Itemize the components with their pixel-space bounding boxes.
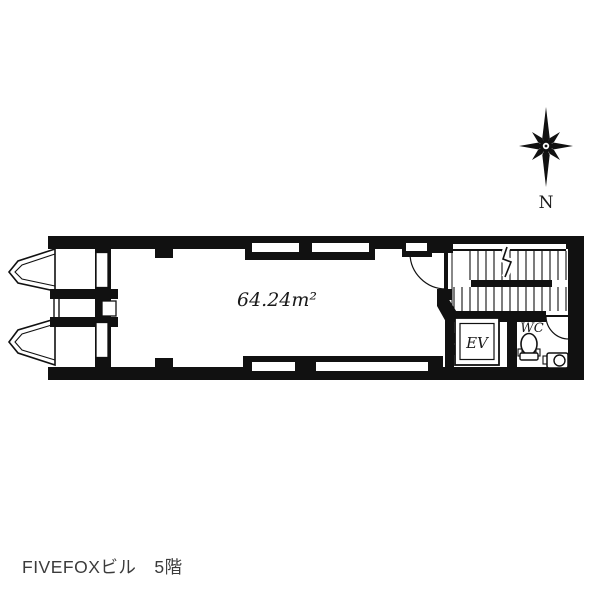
stair-treads-upper — [470, 251, 566, 280]
wc-door — [546, 316, 569, 339]
bottom-wall-pilaster — [155, 358, 173, 367]
north-label: N — [539, 193, 554, 213]
wc-door-swing-arc — [546, 316, 569, 339]
ev-wc-partition-wall — [507, 311, 517, 380]
window-band-top — [245, 236, 432, 260]
door-swing-arc — [410, 253, 446, 289]
elevator-door-jamb-top — [448, 333, 455, 343]
stair-door-top-jamb — [432, 236, 453, 253]
elevator-label: EV — [465, 334, 490, 352]
floor-caption: FIVEFOXビル 5階 — [22, 554, 183, 579]
bay-window-upper — [9, 249, 55, 291]
stair-treads-lower — [454, 287, 566, 311]
top-wall-pilaster — [155, 249, 173, 258]
door-leaf — [444, 253, 448, 289]
door-main-to-stairs — [410, 253, 448, 289]
bay-opening-frame-lower — [96, 323, 108, 358]
toilet-icon — [518, 334, 540, 361]
compass-rose: N — [519, 107, 573, 213]
floor-plan-drawing: EV WC 64.24m² — [0, 0, 600, 600]
elevator-shaft: EV — [448, 318, 499, 365]
wc-room: WC — [518, 316, 569, 368]
sink-icon — [543, 353, 568, 368]
right-wall — [568, 236, 584, 380]
bay-connector-window — [54, 299, 59, 317]
elevator-door-jamb-bottom — [448, 345, 455, 355]
area-label: 64.24m² — [237, 289, 317, 311]
compass-south-point — [542, 146, 549, 187]
stair-handrail — [471, 280, 552, 287]
staircase — [452, 247, 566, 311]
window-band-bottom — [243, 356, 443, 380]
floorplan-page: EV WC 64.24m² — [0, 0, 600, 600]
bay-opening-frame-upper — [96, 253, 108, 288]
bay-window-lower — [9, 319, 55, 365]
alcove-window-frame — [102, 301, 116, 316]
